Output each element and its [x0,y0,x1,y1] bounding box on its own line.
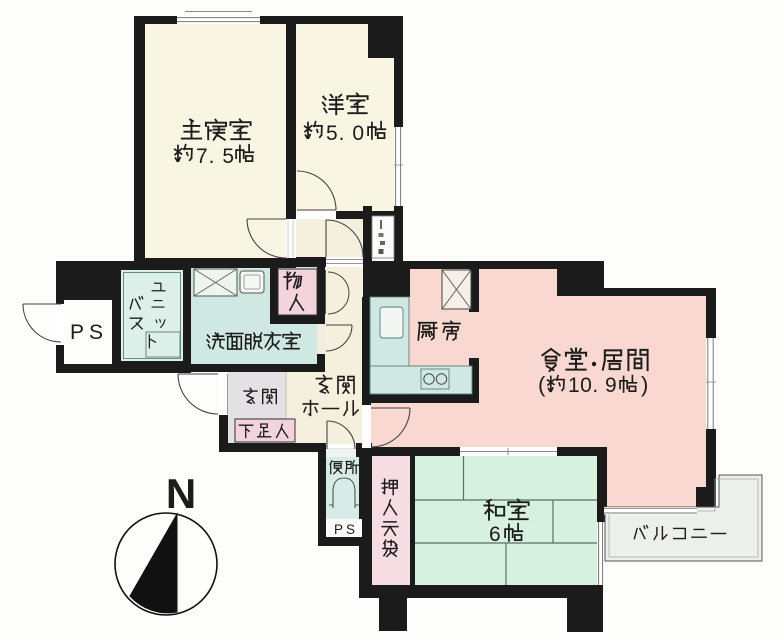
svg-text:PS: PS [70,321,108,344]
svg-text:): ) [641,372,648,397]
svg-text:PS: PS [334,522,358,537]
svg-text:N: N [166,470,196,517]
svg-text:6: 6 [489,523,501,546]
svg-text:7. 5: 7. 5 [196,145,235,168]
svg-text:5. 0: 5. 0 [326,122,365,145]
svg-text:10. 9: 10. 9 [568,374,617,397]
svg-text:(: ( [538,372,546,397]
